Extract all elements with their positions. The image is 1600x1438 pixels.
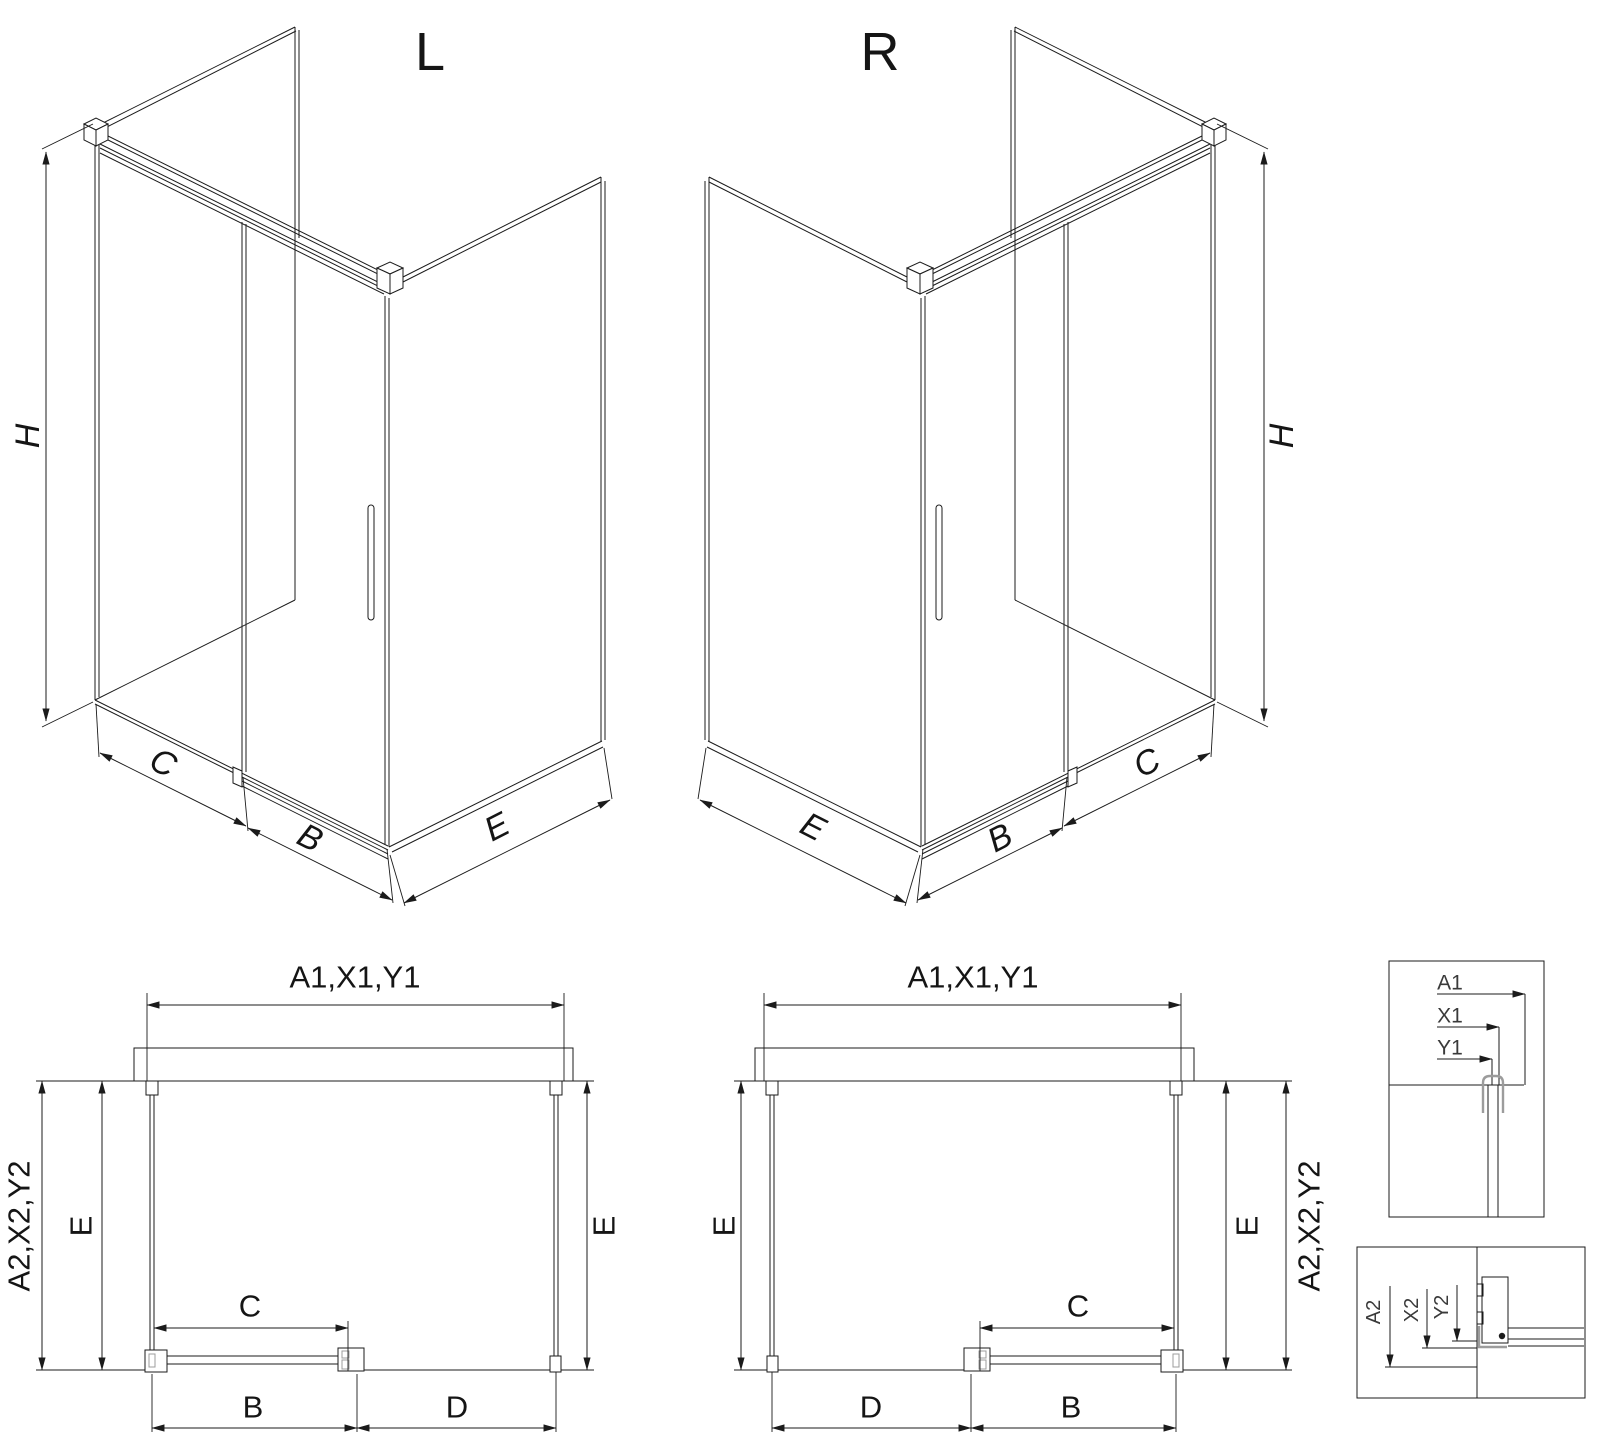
iso-view-left-structure <box>42 27 612 906</box>
detail-roller-carriage <box>1477 1277 1584 1347</box>
technical-drawing-page: L H C B E R H C B E A1,X1,Y1 A2,X2,Y2 E … <box>0 0 1600 1438</box>
iso-right-title: R <box>861 22 900 82</box>
iso-view-left-labels: L H C B E <box>9 22 516 860</box>
plan-left-dim-label-e-right: E <box>587 1216 622 1237</box>
roller-wheel <box>1499 1333 1505 1339</box>
plan-left-dim-label-d: D <box>446 1390 468 1425</box>
detail-box-top: A1 X1 Y1 <box>1389 961 1544 1217</box>
plan-right-dim-label-a2x2y2: A2,X2,Y2 <box>1292 1161 1327 1292</box>
iso-left-dim-label-c: C <box>143 740 183 785</box>
detail-bottom-label-y2: Y2 <box>1431 1295 1453 1319</box>
plan-left-dim-label-a1x1y1: A1,X1,Y1 <box>290 960 421 995</box>
plan-left-dim-label-a2x2y2: A2,X2,Y2 <box>2 1161 37 1292</box>
plan-left-dim-label-c: C <box>239 1289 261 1324</box>
plan-right-dim-label-d: D <box>860 1390 882 1425</box>
detail-top-label-a1: A1 <box>1437 972 1463 995</box>
iso-right-dim-label-b: B <box>981 816 1018 860</box>
plan-left-dim-label-e-left: E <box>64 1216 99 1237</box>
detail-wall-profile <box>1483 1076 1503 1113</box>
detail-bottom-label-a2: A2 <box>1363 1300 1385 1324</box>
plan-view-left-structure <box>36 993 594 1432</box>
iso-left-dim-label-h: H <box>9 423 47 448</box>
plan-left-dim-label-b: B <box>243 1390 264 1425</box>
iso-left-title: L <box>415 22 445 82</box>
plan-view-left-labels: A1,X1,Y1 A2,X2,Y2 E E C B D <box>2 960 622 1425</box>
plan-view-right-structure <box>734 993 1292 1432</box>
detail-top-label-y1: Y1 <box>1437 1037 1463 1060</box>
iso-right-dim-label-e: E <box>794 805 832 849</box>
plan-right-dim-label-e-left: E <box>707 1216 742 1237</box>
iso-view-right-labels: R H C B E <box>794 22 1301 860</box>
iso-right-dim-label-h: H <box>1263 423 1301 448</box>
iso-left-dim-label-b: B <box>291 816 328 860</box>
plan-right-dim-label-e-right: E <box>1230 1216 1265 1237</box>
iso-left-dim-label-e: E <box>478 805 516 849</box>
iso-right-dim-label-c: C <box>1127 740 1167 785</box>
shower-enclosure-technical-drawing: L H C B E R H C B E A1,X1,Y1 A2,X2,Y2 E … <box>0 0 1600 1438</box>
plan-view-right-labels: A1,X1,Y1 A2,X2,Y2 E E C B D <box>707 960 1327 1425</box>
plan-right-dim-label-c: C <box>1067 1289 1089 1324</box>
detail-bottom-label-x2: X2 <box>1401 1298 1423 1322</box>
detail-glass-section <box>1488 1085 1498 1217</box>
detail-top-label-x1: X1 <box>1437 1005 1463 1028</box>
iso-view-right-structure <box>698 27 1268 906</box>
plan-right-dim-label-a1x1y1: A1,X1,Y1 <box>908 960 1039 995</box>
plan-right-dim-label-b: B <box>1061 1390 1082 1425</box>
detail-box-bottom: A2 X2 Y2 <box>1357 1247 1585 1398</box>
